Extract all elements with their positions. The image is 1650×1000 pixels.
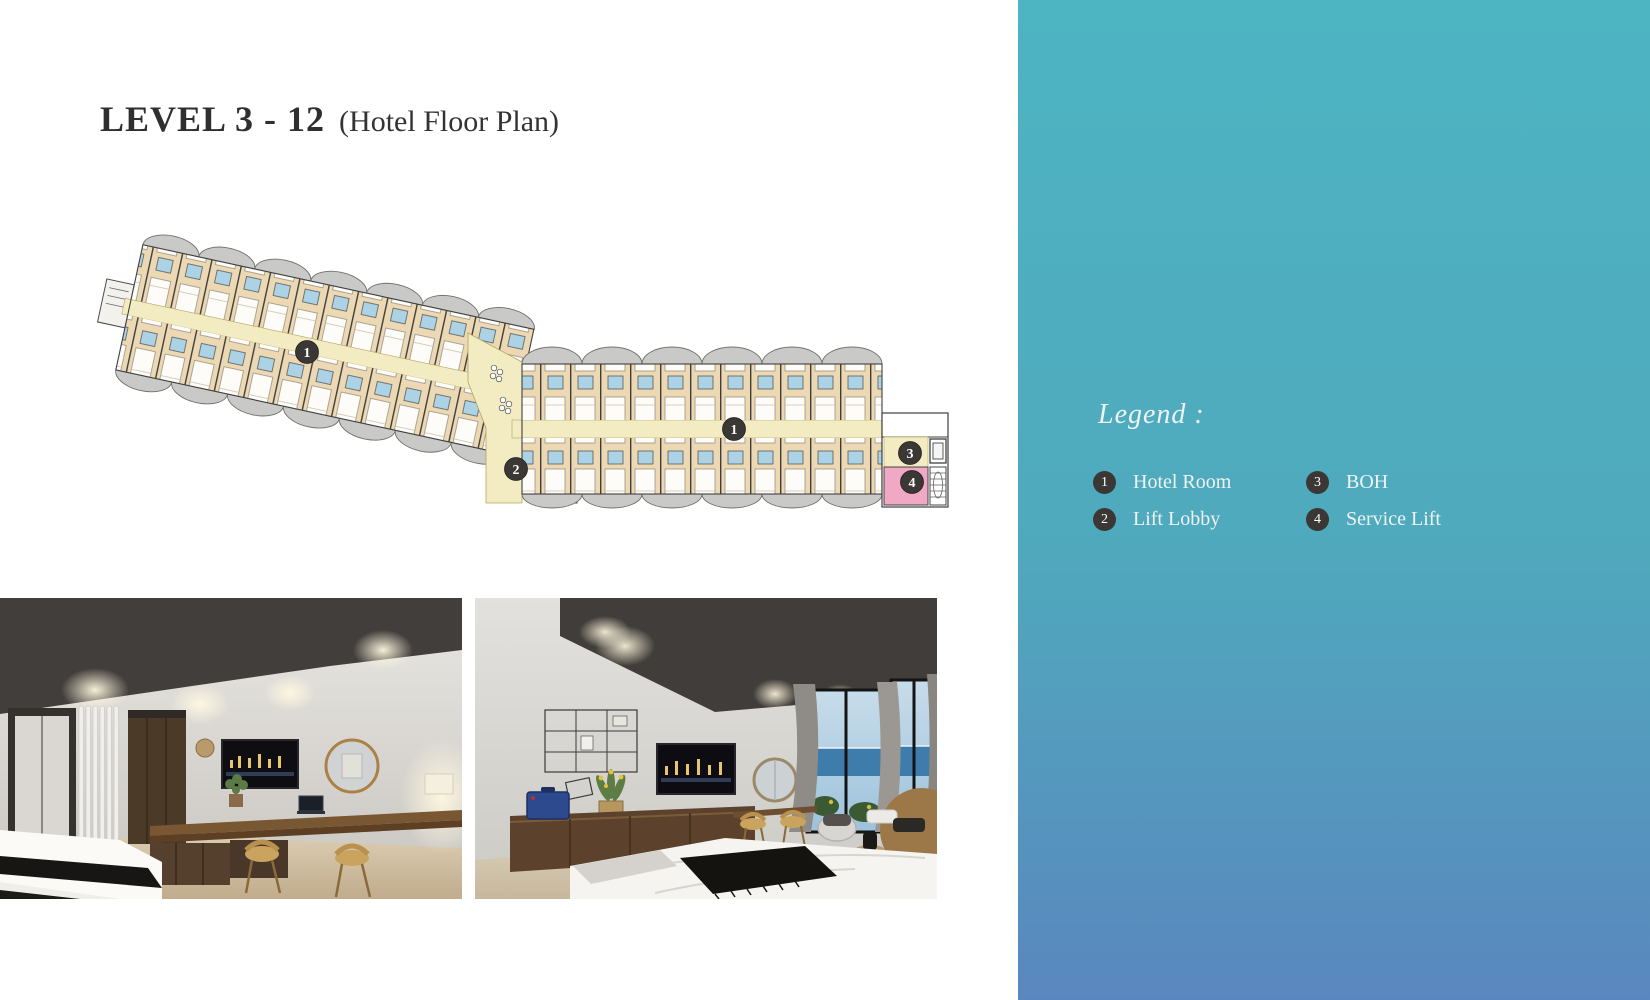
hotel-floor-plan: 1 1 2 3 4	[90, 200, 960, 515]
legend-column-right: 3 BOH 4 Service Lift	[1306, 471, 1441, 531]
legend-badge-2: 2	[1093, 508, 1116, 531]
legend-panel: Legend : 1 Hotel Room 2 Lift Lobby 3 BOH…	[1018, 0, 1650, 1000]
svg-text:4: 4	[909, 476, 916, 491]
legend-item-boh: 3 BOH	[1306, 471, 1441, 494]
svg-text:1: 1	[731, 423, 738, 438]
svg-text:3: 3	[907, 447, 914, 462]
slide-page: LEVEL 3 - 12 (Hotel Floor Plan)	[0, 0, 1650, 1000]
legend-label-lift-lobby: Lift Lobby	[1133, 508, 1220, 531]
page-title: LEVEL 3 - 12 (Hotel Floor Plan)	[100, 98, 559, 140]
plan-marker-hotel-room-right: 1	[723, 418, 746, 441]
legend-badge-4: 4	[1306, 508, 1329, 531]
page-title-level: LEVEL 3 - 12	[100, 98, 325, 140]
plan-marker-service-lift: 4	[901, 471, 924, 494]
legend-item-service-lift: 4 Service Lift	[1306, 508, 1441, 531]
hotel-room-photo-seaview	[475, 598, 937, 899]
legend-item-hotel-room: 1 Hotel Room	[1093, 471, 1231, 494]
plan-marker-boh: 3	[899, 442, 922, 465]
legend-label-boh: BOH	[1346, 471, 1388, 494]
page-title-subtitle: (Hotel Floor Plan)	[339, 105, 559, 139]
svg-text:1: 1	[304, 346, 311, 361]
plan-right-wing	[512, 347, 890, 508]
legend-badge-1: 1	[1093, 471, 1116, 494]
svg-text:2: 2	[513, 463, 520, 478]
plan-marker-hotel-room-left: 1	[296, 341, 319, 364]
plan-marker-lift-lobby: 2	[505, 458, 528, 481]
legend-heading: Legend :	[1098, 399, 1205, 431]
legend-label-hotel-room: Hotel Room	[1133, 471, 1231, 494]
legend-item-lift-lobby: 2 Lift Lobby	[1093, 508, 1231, 531]
legend-label-service-lift: Service Lift	[1346, 508, 1441, 531]
legend-column-left: 1 Hotel Room 2 Lift Lobby	[1093, 471, 1231, 531]
legend-badge-3: 3	[1306, 471, 1329, 494]
hotel-room-photo-desk	[0, 598, 462, 899]
